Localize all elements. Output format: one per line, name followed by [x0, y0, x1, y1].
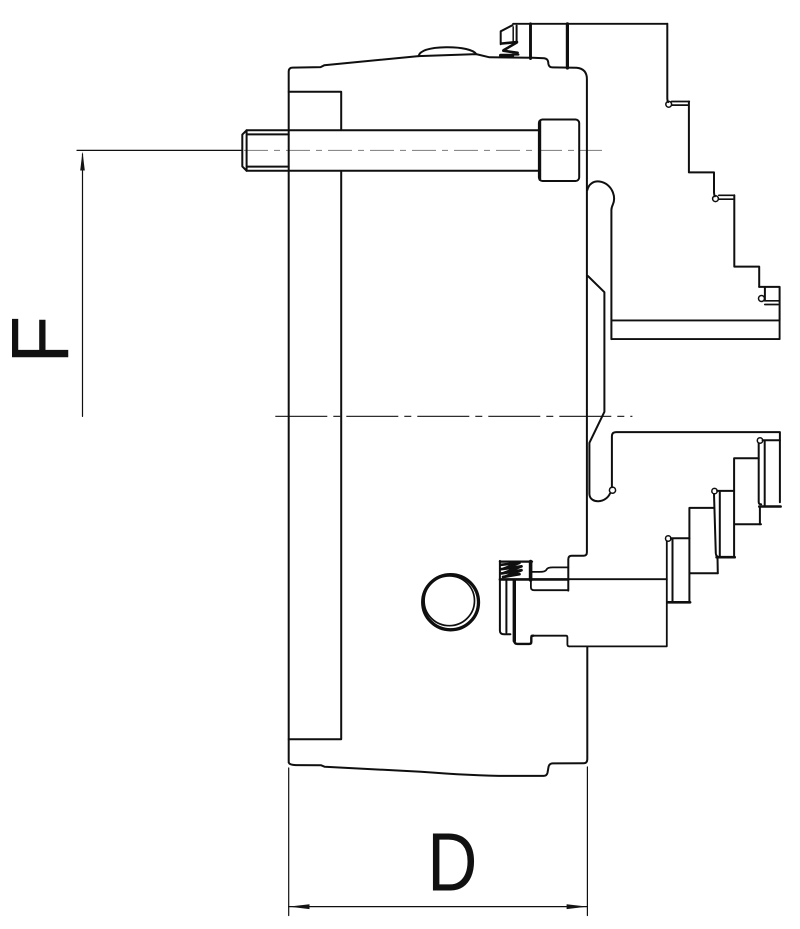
svg-text:F: F [0, 316, 86, 364]
svg-text:D: D [427, 817, 477, 909]
